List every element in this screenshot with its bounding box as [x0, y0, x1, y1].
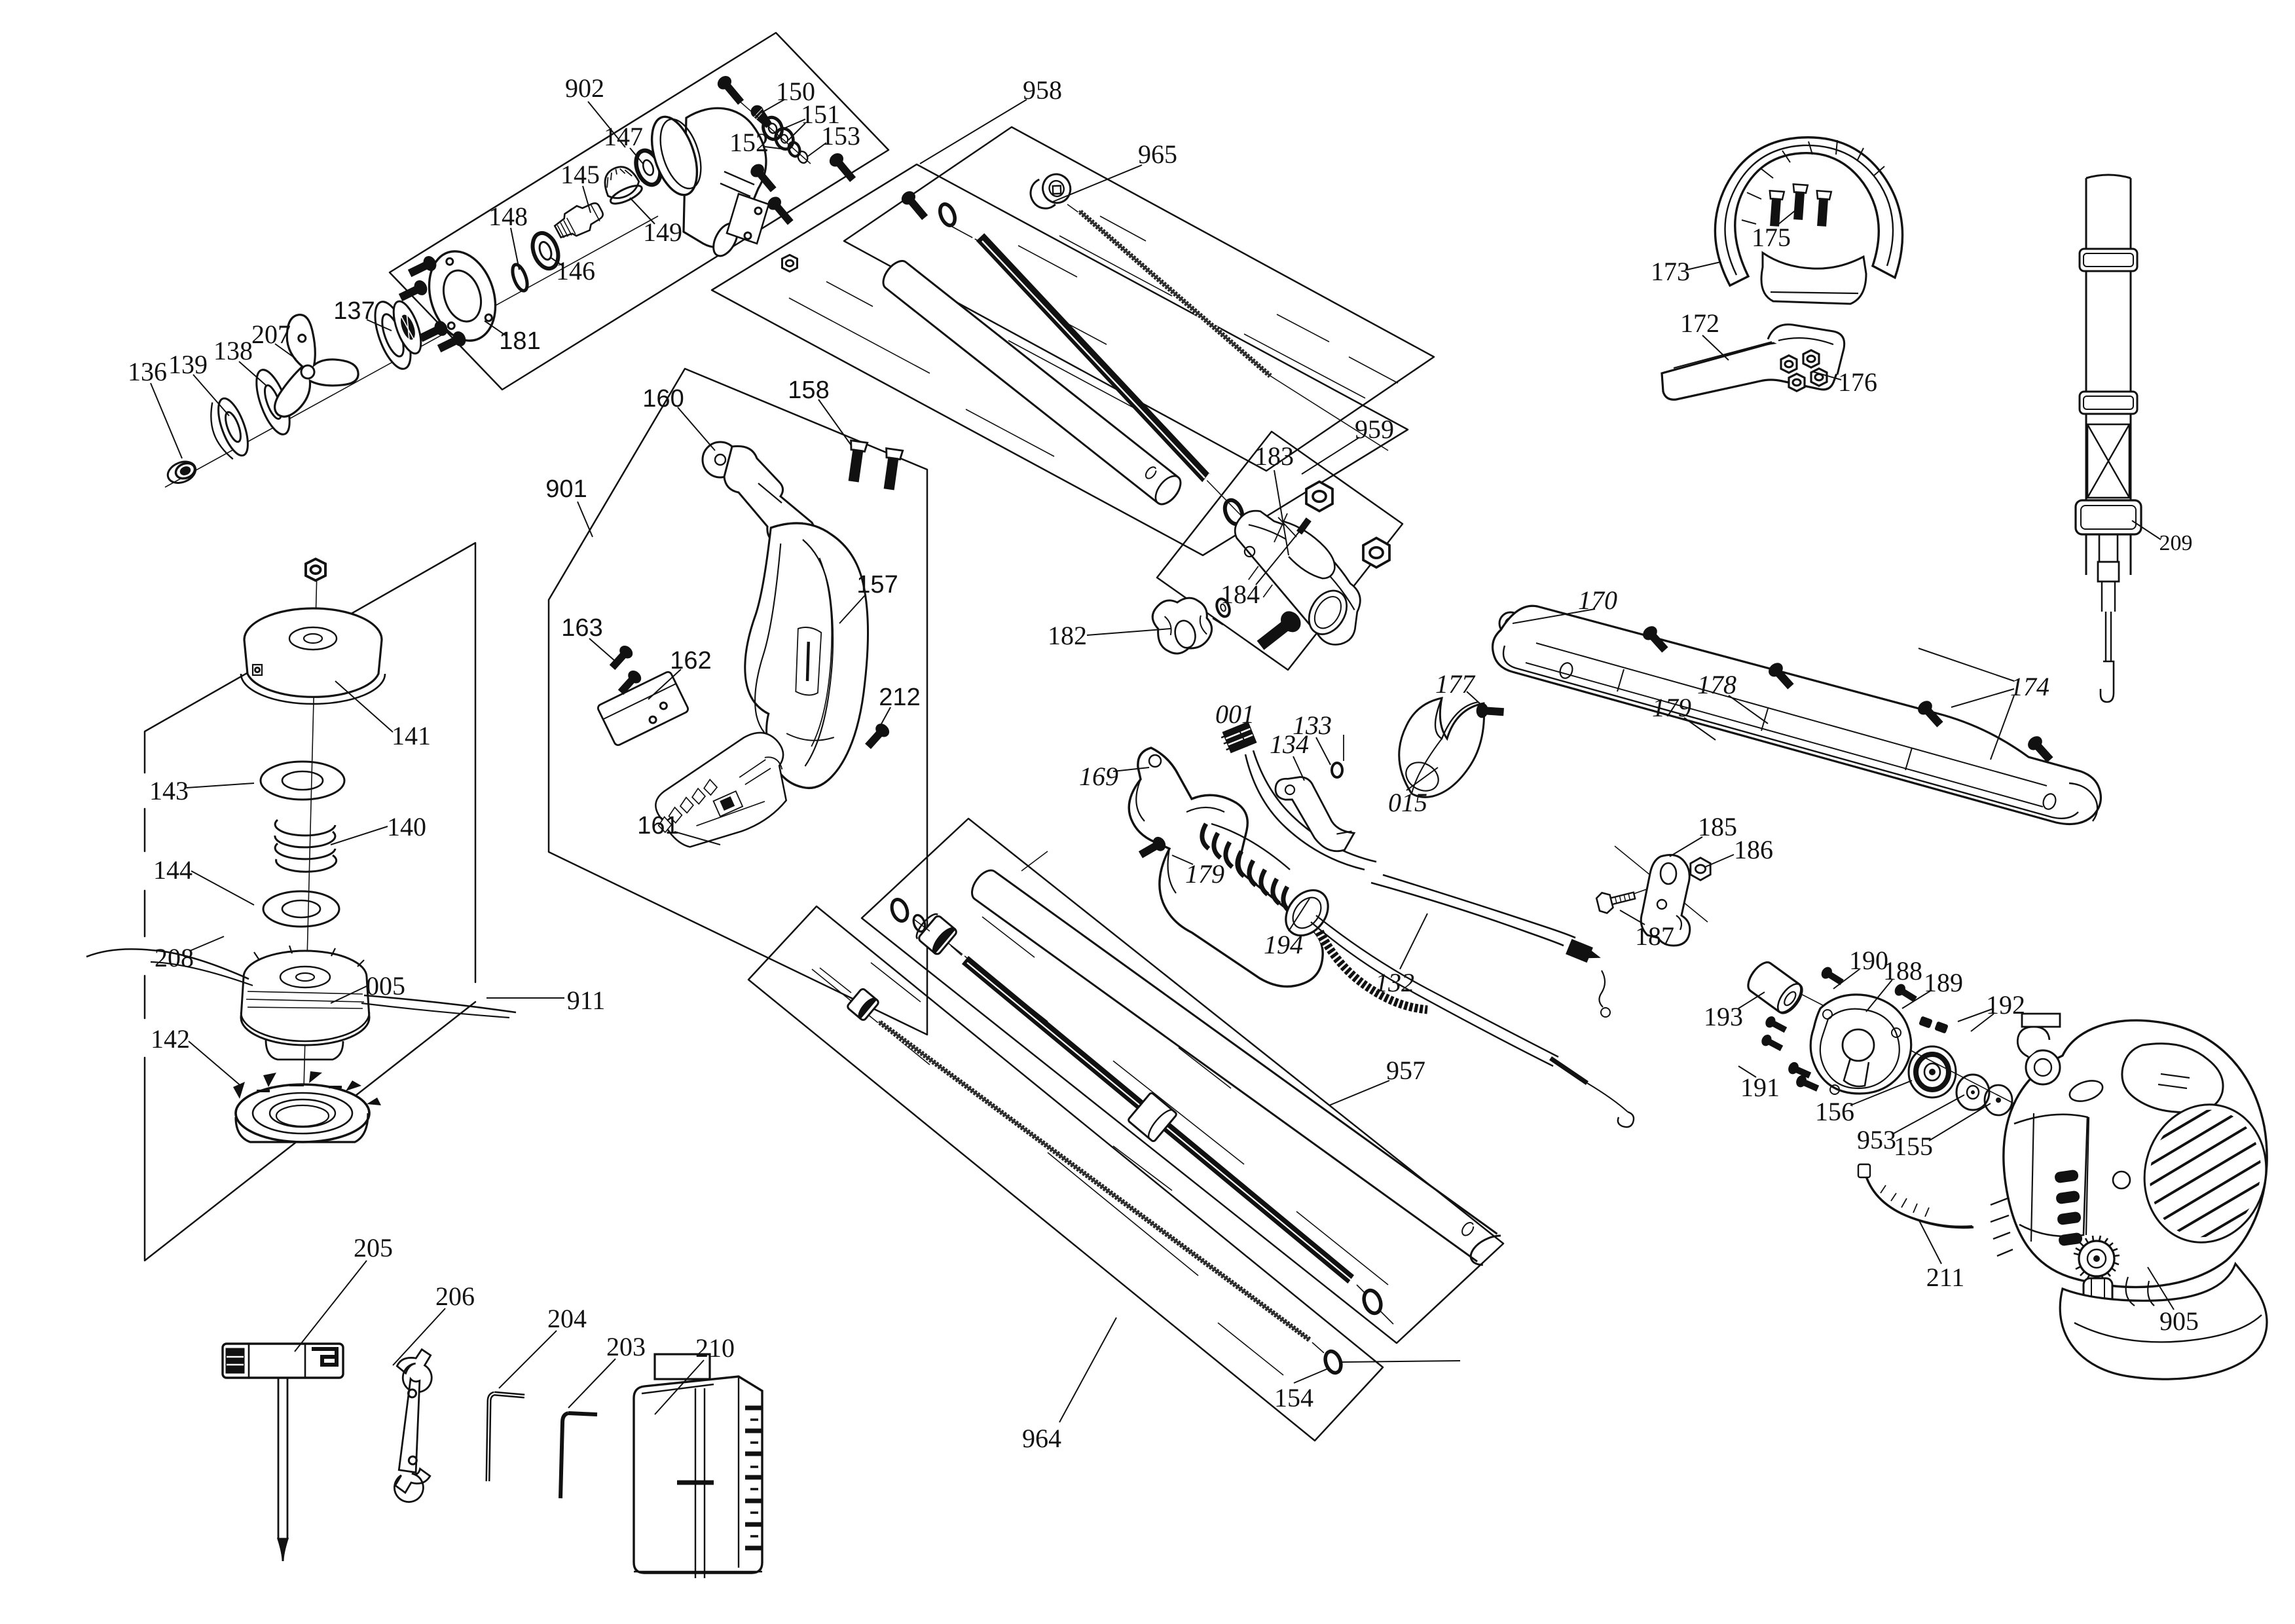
svg-text:205: 205 [354, 1233, 393, 1263]
svg-text:001: 001 [1215, 699, 1255, 729]
svg-text:204: 204 [547, 1304, 587, 1333]
svg-text:162: 162 [670, 647, 711, 674]
svg-text:005: 005 [366, 971, 405, 1001]
svg-text:178: 178 [1697, 670, 1736, 699]
svg-text:134: 134 [1270, 729, 1309, 759]
svg-text:965: 965 [1138, 139, 1177, 169]
svg-text:158: 158 [788, 377, 829, 404]
svg-text:182: 182 [1048, 621, 1087, 650]
svg-text:208: 208 [155, 943, 194, 972]
svg-text:138: 138 [213, 336, 253, 365]
svg-text:157: 157 [856, 571, 898, 599]
svg-text:176: 176 [1838, 367, 1877, 397]
svg-text:132: 132 [1375, 968, 1414, 997]
svg-text:191: 191 [1740, 1073, 1780, 1102]
svg-text:194: 194 [1264, 930, 1303, 959]
svg-text:209: 209 [2159, 531, 2193, 555]
svg-text:173: 173 [1651, 257, 1690, 286]
svg-text:137: 137 [333, 297, 375, 325]
svg-text:901: 901 [545, 475, 587, 503]
svg-text:193: 193 [1704, 1002, 1743, 1031]
svg-text:143: 143 [149, 776, 189, 805]
svg-text:212: 212 [879, 684, 920, 711]
svg-text:207: 207 [251, 320, 291, 349]
svg-text:189: 189 [1924, 968, 1963, 997]
svg-text:149: 149 [643, 217, 682, 247]
svg-text:146: 146 [556, 256, 595, 286]
svg-text:156: 156 [1815, 1097, 1854, 1126]
svg-text:911: 911 [567, 986, 606, 1015]
svg-text:953: 953 [1857, 1125, 1896, 1154]
svg-text:141: 141 [392, 721, 431, 750]
svg-text:160: 160 [642, 385, 684, 413]
svg-text:206: 206 [435, 1282, 475, 1311]
svg-text:905: 905 [2159, 1306, 2199, 1336]
svg-text:177: 177 [1435, 669, 1476, 699]
svg-text:203: 203 [606, 1332, 646, 1361]
svg-text:175: 175 [1752, 223, 1791, 252]
svg-text:210: 210 [695, 1333, 735, 1363]
svg-text:142: 142 [151, 1024, 190, 1054]
svg-text:148: 148 [488, 202, 528, 231]
svg-text:172: 172 [1680, 308, 1719, 338]
svg-text:211: 211 [1926, 1263, 1965, 1292]
svg-text:154: 154 [1274, 1383, 1313, 1412]
svg-text:153: 153 [821, 121, 860, 151]
svg-text:187: 187 [1635, 921, 1674, 951]
svg-text:163: 163 [561, 614, 602, 642]
svg-text:188: 188 [1883, 956, 1922, 986]
svg-text:174: 174 [2010, 672, 2049, 701]
svg-text:964: 964 [1022, 1424, 1061, 1453]
svg-text:136: 136 [128, 357, 167, 386]
svg-text:139: 139 [168, 350, 208, 379]
svg-text:179: 179 [1185, 859, 1224, 889]
svg-text:184: 184 [1221, 580, 1260, 609]
svg-text:186: 186 [1734, 835, 1773, 864]
svg-text:169: 169 [1079, 762, 1118, 791]
svg-text:152: 152 [729, 128, 769, 157]
svg-text:161: 161 [637, 812, 678, 840]
svg-text:181: 181 [499, 327, 540, 355]
svg-text:902: 902 [565, 73, 604, 103]
svg-text:192: 192 [1986, 990, 2025, 1020]
svg-text:185: 185 [1698, 812, 1737, 841]
svg-text:190: 190 [1849, 946, 1888, 975]
svg-text:183: 183 [1255, 441, 1294, 471]
svg-text:155: 155 [1894, 1132, 1933, 1161]
svg-text:957: 957 [1386, 1056, 1425, 1085]
svg-text:147: 147 [604, 122, 643, 151]
svg-text:145: 145 [560, 160, 600, 189]
svg-text:140: 140 [387, 812, 426, 841]
svg-text:179: 179 [1652, 693, 1691, 722]
svg-text:015: 015 [1388, 788, 1427, 817]
svg-text:958: 958 [1023, 75, 1062, 105]
svg-text:144: 144 [153, 855, 193, 885]
svg-text:959: 959 [1355, 415, 1394, 444]
svg-text:170: 170 [1578, 585, 1617, 615]
